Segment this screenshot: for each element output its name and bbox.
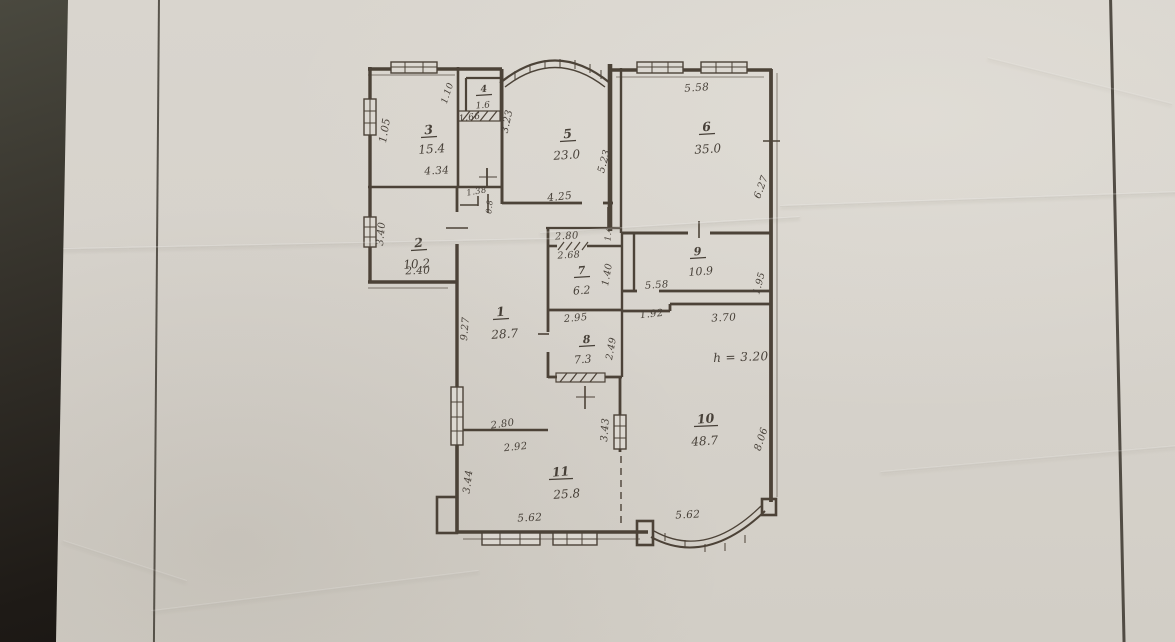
dimension-label: 3.44 bbox=[462, 469, 476, 494]
dimension-label: 1.05 bbox=[377, 117, 393, 144]
paper-crease bbox=[63, 540, 187, 582]
paper-crease bbox=[880, 445, 1175, 473]
dimension-label: 3.43 bbox=[599, 418, 612, 443]
room-number-label: 10 bbox=[696, 410, 715, 426]
room-area-label: 6.2 bbox=[573, 283, 591, 297]
room-number-label: 9 bbox=[693, 245, 702, 259]
dimension-label: 2.80 bbox=[554, 230, 580, 242]
dimension-label: 2.49 bbox=[604, 336, 619, 361]
paper-sheet: 128.7210.2315.441.6523.0635.076.287.3910… bbox=[0, 0, 1175, 642]
dimension-label: 2.95 bbox=[562, 312, 588, 325]
dimension-label: 1.92 bbox=[639, 308, 664, 321]
dimension-label: 1.10 bbox=[440, 82, 456, 106]
room-number-label: 4 bbox=[480, 84, 488, 96]
room-number-label: 7 bbox=[577, 264, 586, 278]
dimension-label: 0.8 bbox=[484, 199, 494, 214]
dimension-label: 3.40 bbox=[375, 221, 388, 246]
room-area-label: 7.3 bbox=[574, 352, 592, 366]
room-area-label: 25.8 bbox=[552, 486, 581, 502]
dimension-label: 1.40 bbox=[600, 262, 615, 286]
room-fraction-line bbox=[560, 141, 576, 142]
room-fraction-line bbox=[574, 277, 590, 278]
room-number-label: 5 bbox=[563, 126, 573, 142]
dimension-label: 1.38 bbox=[466, 185, 488, 198]
room-fraction-line bbox=[411, 250, 427, 251]
room-number-label: 8 bbox=[582, 333, 591, 347]
dimension-label: 4.34 bbox=[423, 164, 450, 177]
dimension-label: 6.27 bbox=[752, 174, 771, 200]
dimension-label: 2.68 bbox=[556, 249, 580, 261]
form-border-line-right bbox=[1109, 0, 1125, 642]
dimension-label: 8.06 bbox=[753, 426, 771, 452]
room-number-label: 2 bbox=[413, 235, 424, 251]
room-number-label: 6 bbox=[702, 119, 712, 135]
room-area-label: 35.0 bbox=[694, 141, 722, 157]
room-fraction-line bbox=[421, 137, 437, 138]
room-number-label: 1 bbox=[496, 304, 506, 320]
dimension-label: 1.66 bbox=[458, 112, 481, 125]
floor-plan-drawing: 128.7210.2315.441.6523.0635.076.287.3910… bbox=[355, 45, 785, 565]
room-fraction-line bbox=[476, 95, 492, 96]
room-fraction-line bbox=[699, 134, 715, 135]
room-fraction-line bbox=[579, 346, 595, 347]
room-number-label: 3 bbox=[424, 122, 434, 138]
table-surface: 128.7210.2315.441.6523.0635.076.287.3910… bbox=[0, 0, 1175, 642]
room-area-label: 28.7 bbox=[490, 326, 519, 342]
dimension-label: 5.62 bbox=[675, 508, 701, 521]
door-hatch bbox=[556, 373, 605, 382]
paper-crease bbox=[988, 57, 1173, 105]
room-area-label: 15.4 bbox=[418, 141, 446, 157]
room-area-label: 23.0 bbox=[552, 147, 581, 163]
room-area-label: 10.9 bbox=[688, 264, 713, 279]
room-number-label: 11 bbox=[551, 463, 570, 479]
form-border-line-left bbox=[153, 0, 160, 642]
dimension-label: 1.4 bbox=[603, 226, 614, 242]
dimension-label: 3.70 bbox=[711, 311, 737, 324]
room-area-label: 1.6 bbox=[475, 100, 490, 111]
room-fraction-line bbox=[493, 319, 509, 320]
dimension-label: 5.62 bbox=[517, 511, 543, 524]
dimension-label: 9.27 bbox=[459, 316, 472, 341]
paper-crease bbox=[151, 570, 479, 612]
dimension-label: 5.58 bbox=[645, 279, 670, 292]
dimension-label: h = 3.20 bbox=[713, 349, 769, 365]
room-fraction-line bbox=[690, 258, 706, 259]
dimension-label: 2.40 bbox=[404, 265, 430, 278]
dimension-label: 5.58 bbox=[684, 81, 710, 95]
room-area-label: 48.7 bbox=[690, 433, 719, 449]
dimension-label: 2.92 bbox=[502, 441, 528, 455]
